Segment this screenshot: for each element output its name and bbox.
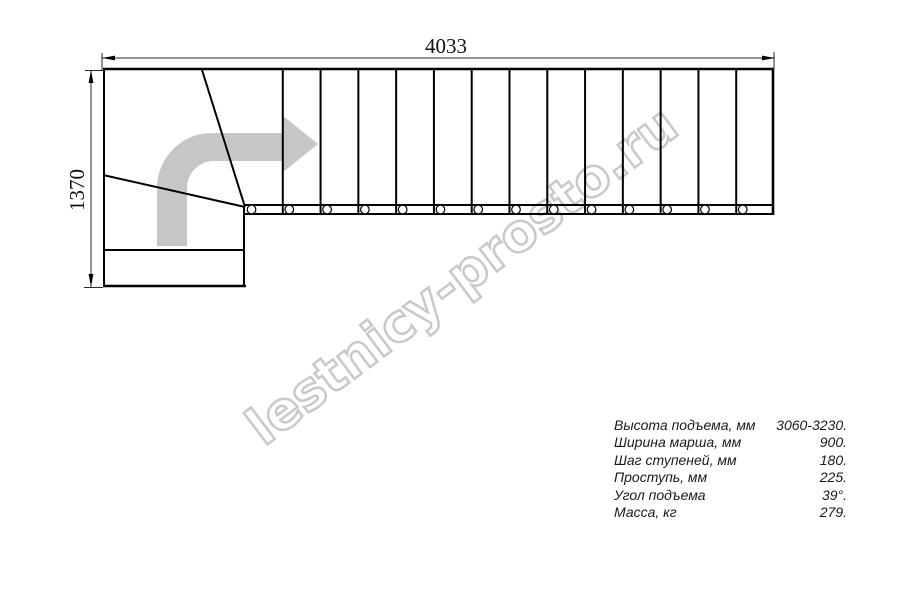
- bolt-circle: [587, 205, 596, 214]
- spec-row-step-pitch: Шаг ступеней, мм 180.: [614, 452, 847, 469]
- spec-label: Угол подъема: [614, 487, 706, 504]
- bolt-circle: [285, 205, 294, 214]
- width-dimension-label: 4033: [425, 34, 467, 58]
- stair-outline: [103, 69, 774, 287]
- width-dim-arrow-left: [102, 56, 115, 61]
- spec-value: 39°.: [822, 487, 847, 504]
- bolt-circle: [625, 205, 634, 214]
- bolt-circle: [701, 205, 710, 214]
- spec-label: Ширина марша, мм: [614, 434, 741, 451]
- spec-label: Шаг ступеней, мм: [614, 452, 737, 469]
- spec-value: 279.: [820, 504, 847, 521]
- spec-value: 180.: [820, 452, 847, 469]
- bolt-circle: [247, 205, 256, 214]
- spec-row-rise-angle: Угол подъема 39°.: [614, 487, 847, 504]
- specs-table: Высота подъема, мм 3060-3230. Ширина мар…: [614, 417, 847, 521]
- spec-label: Высота подъема, мм: [614, 417, 756, 434]
- spec-row-mass: Масса, кг 279.: [614, 504, 847, 521]
- height-dim-arrow-bottom: [89, 274, 94, 287]
- bolt-circle: [549, 205, 558, 214]
- bolt-circle: [323, 205, 332, 214]
- bolt-circle: [512, 205, 521, 214]
- width-dim-arrow-right: [762, 56, 775, 61]
- spec-value: 3060-3230.: [776, 417, 847, 434]
- staircase-drawing-page: lestnicy-prosto.ru 4033: [0, 0, 900, 600]
- spec-label: Масса, кг: [614, 504, 677, 521]
- spec-row-rise-height: Высота подъема, мм 3060-3230.: [614, 417, 847, 434]
- bolt-circle: [398, 205, 407, 214]
- spec-row-tread-depth: Проступь, мм 225.: [614, 469, 847, 486]
- spec-label: Проступь, мм: [614, 469, 707, 486]
- spec-value: 900.: [820, 434, 847, 451]
- height-dim-arrow-top: [89, 70, 94, 83]
- spec-value: 225.: [820, 469, 847, 486]
- bolt-circle: [738, 205, 747, 214]
- bolt-circle: [436, 205, 445, 214]
- bolt-circle: [663, 205, 672, 214]
- bolt-circle: [361, 205, 370, 214]
- bolt-circle: [474, 205, 483, 214]
- spec-row-flight-width: Ширина марша, мм 900.: [614, 434, 847, 451]
- height-dimension-label: 1370: [65, 169, 89, 211]
